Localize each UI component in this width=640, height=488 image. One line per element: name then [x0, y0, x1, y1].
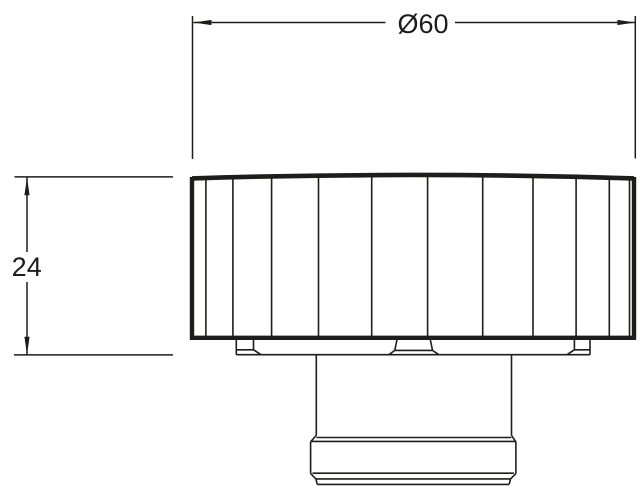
- svg-text:Ø60: Ø60: [397, 9, 448, 39]
- svg-text:24: 24: [12, 252, 42, 282]
